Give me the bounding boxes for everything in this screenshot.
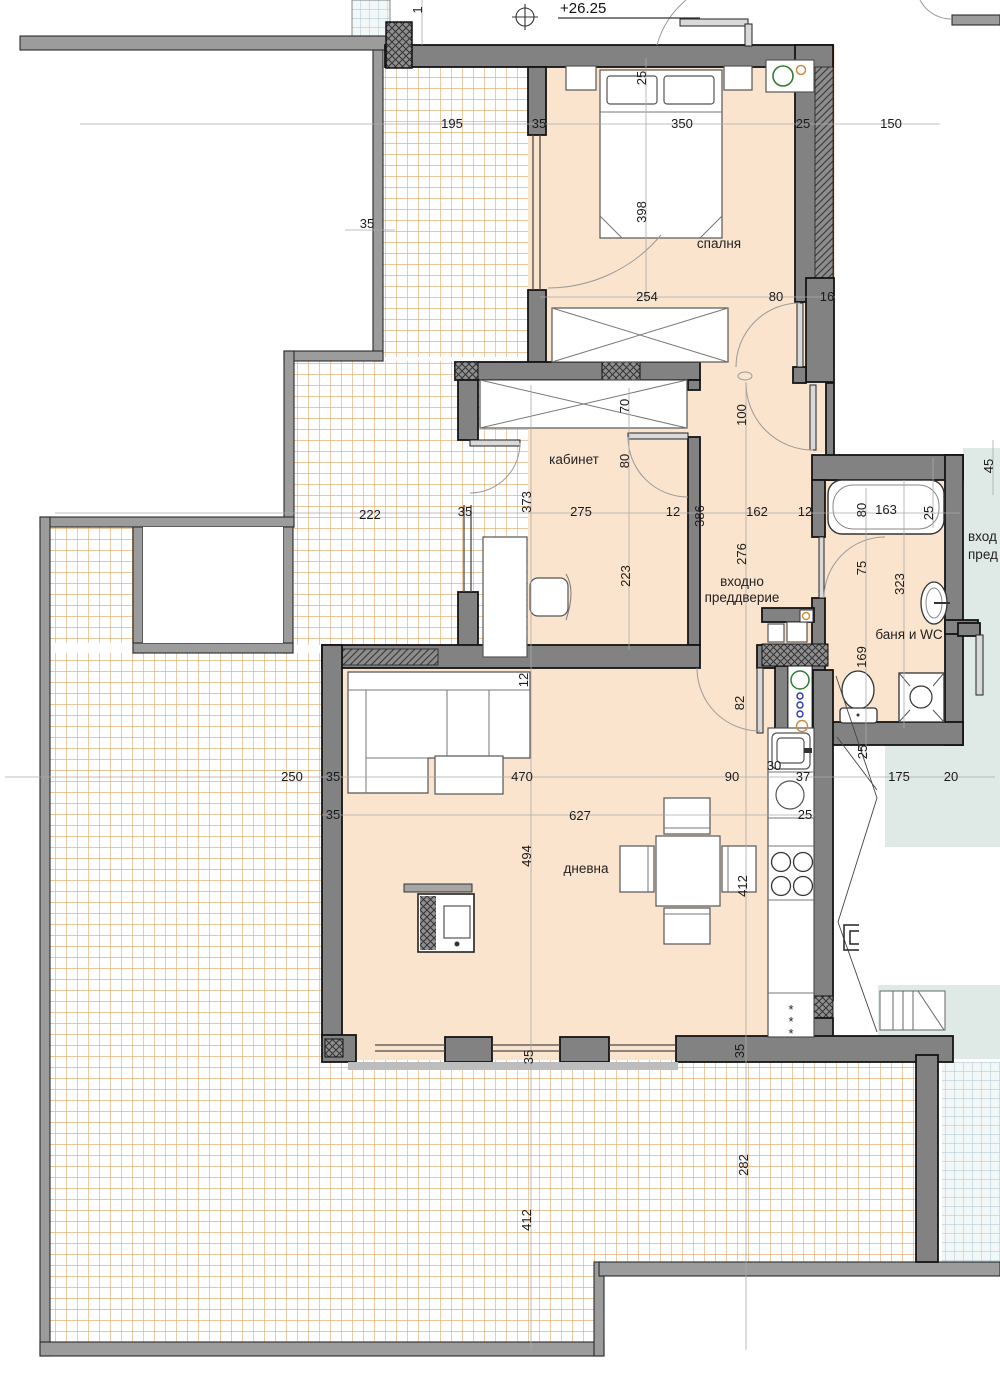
dimension-label: 254: [636, 289, 658, 304]
dimension-label: 150: [880, 116, 902, 131]
room-label-living-room: дневна: [564, 861, 609, 876]
dimension-label: 35: [360, 216, 374, 231]
dimension-label: 35: [532, 116, 546, 131]
appliance-marks: ***: [788, 1002, 793, 1041]
room-label-office: кабинет: [549, 452, 599, 467]
dimension-label: 162: [746, 504, 768, 519]
dimension-label: 30: [767, 758, 781, 773]
dimension-label: 20: [944, 769, 958, 784]
neighbor-upper-door-arc: [920, 0, 952, 19]
wardrobe-bedroom: [552, 308, 728, 362]
neighbor-terrace-tiles: [942, 1062, 1000, 1262]
dimension-label: 169: [854, 646, 869, 668]
dimension-label: 275: [570, 504, 592, 519]
dimension-label: 35: [326, 769, 340, 784]
column-north-west: [386, 22, 412, 68]
room-label-neighbor-entry-hall: вход: [968, 529, 997, 544]
dimension-label: 35: [521, 1050, 536, 1064]
dimension-label: 223: [618, 565, 633, 587]
dimension-label: 35: [732, 1044, 747, 1058]
dimension-label: 12: [798, 504, 812, 519]
wardrobe-office: [480, 380, 687, 428]
dimension-label: 45: [981, 459, 996, 473]
nightstand-right: [724, 66, 752, 90]
neighbor-upper-door-bar: [952, 15, 1000, 25]
north-parapet: [20, 36, 388, 50]
dimension-label: 470: [511, 769, 533, 784]
dimension-label: 175: [888, 769, 910, 784]
nightstand-left: [566, 66, 596, 90]
neighbor-door-leaf: [976, 635, 983, 695]
terrace-divider-wall: [916, 1055, 938, 1262]
dimension-label: 373: [519, 491, 534, 513]
dimension-label: 75: [854, 561, 869, 575]
dimension-label: 12: [516, 673, 531, 687]
dimension-label: 25: [921, 506, 936, 520]
terrace-opening: [143, 527, 283, 643]
dimension-label: 195: [441, 116, 463, 131]
dimension-label: 80: [617, 454, 632, 468]
dimension-label: 412: [735, 875, 750, 897]
dimension-label: 35: [458, 504, 472, 519]
dimension-label: 25: [855, 745, 870, 759]
room-label-neighbor-entry-hall: пред: [968, 547, 998, 562]
window-sill-band: [348, 1062, 678, 1070]
dimension-label: 398: [634, 201, 649, 223]
bed: [600, 70, 722, 238]
dimension-label: 276: [734, 543, 749, 565]
neighbor-floor: [963, 448, 1000, 740]
shower: [899, 673, 944, 722]
dimension-label: 82: [732, 696, 747, 710]
dimension-label: 16: [820, 289, 834, 304]
coffee-table: [435, 756, 503, 794]
dimension-label: 250: [281, 769, 303, 784]
elevation-value: +26.25: [560, 0, 606, 17]
dimension-label: 494: [519, 845, 534, 867]
dimension-label: 282: [736, 1154, 751, 1176]
dimension-label: 163: [875, 502, 897, 517]
dimension-label: 412: [519, 1209, 534, 1231]
dimension-label: 323: [892, 573, 907, 595]
dimension-label: 25: [798, 807, 812, 822]
heater-niche: [766, 60, 814, 92]
dimension-label: 386: [692, 505, 707, 527]
neighbor-stairs: [880, 991, 945, 1030]
dimension-label: 35: [326, 807, 340, 822]
room-label-entry-hall: входно: [720, 574, 764, 589]
dimension-label: 37: [796, 769, 810, 784]
north-terrace-door: [657, 0, 752, 46]
dimension-label: 25: [796, 116, 810, 131]
room-label-bathroom: баня и WC: [875, 627, 942, 642]
stove-mark: *: [788, 1026, 793, 1041]
dimension-label: 25: [634, 71, 649, 85]
dimension-label: 222: [359, 507, 381, 522]
room-label-entry-hall: преддверие: [705, 590, 780, 605]
dimension-label: 70: [617, 399, 632, 413]
room-label-bedroom: спалня: [697, 236, 741, 251]
toilet: [840, 671, 877, 723]
floor-plan-drawing: ***: [0, 0, 1000, 1387]
dimension-label: 12: [666, 504, 680, 519]
dimension-label: 100: [734, 404, 749, 426]
floor-plan-page: ***: [0, 0, 1000, 1387]
dimension-label: 1: [410, 6, 425, 13]
dimension-label: 90: [725, 769, 739, 784]
dimension-label: 627: [569, 808, 591, 823]
dimension-label: 80: [769, 289, 783, 304]
dimension-label: 80: [854, 503, 869, 517]
plumbing-shaft-hatch: [762, 644, 828, 666]
dimension-label: 350: [671, 116, 693, 131]
neighbor-skylight-grid: [352, 0, 390, 40]
